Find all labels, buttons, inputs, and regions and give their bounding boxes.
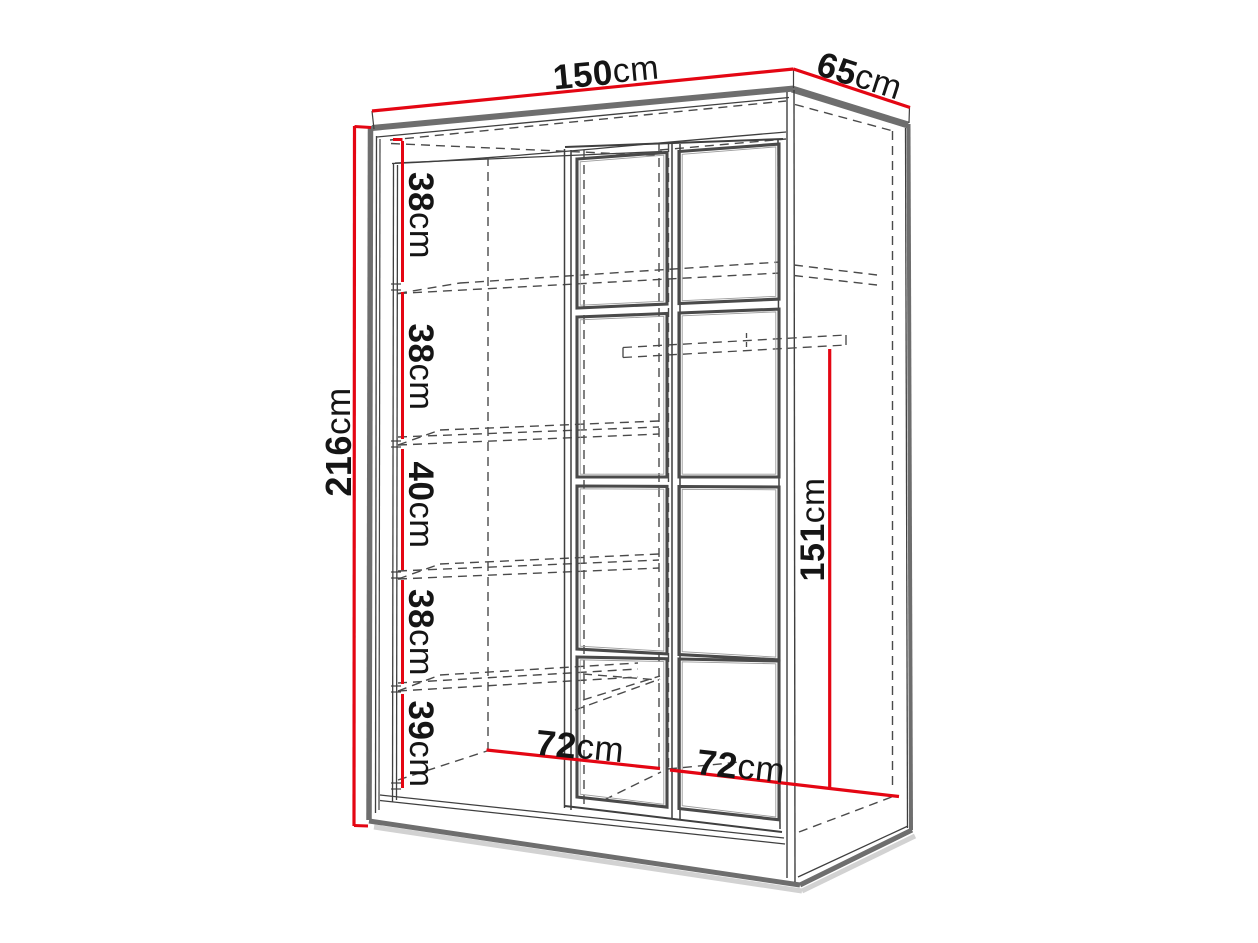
svg-text:39cm: 39cm bbox=[402, 701, 441, 788]
svg-text:38cm: 38cm bbox=[402, 172, 441, 259]
svg-text:40cm: 40cm bbox=[402, 462, 441, 549]
svg-text:151cm: 151cm bbox=[794, 478, 832, 582]
svg-text:38cm: 38cm bbox=[402, 589, 441, 676]
svg-text:216cm: 216cm bbox=[318, 387, 359, 496]
svg-text:38cm: 38cm bbox=[402, 324, 441, 411]
